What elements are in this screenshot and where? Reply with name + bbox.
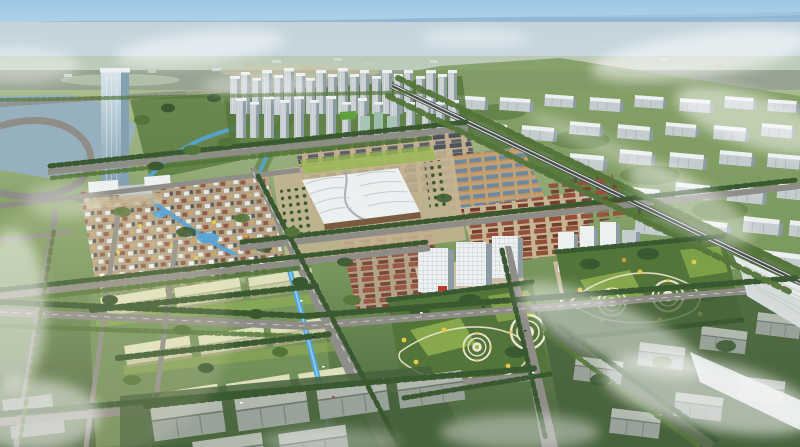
rendering-canvas <box>0 0 800 447</box>
pond <box>153 210 167 218</box>
pond <box>197 233 219 244</box>
aerial-city-rendering <box>0 0 800 447</box>
sports-field <box>340 111 357 120</box>
storefront-sign <box>438 286 447 291</box>
